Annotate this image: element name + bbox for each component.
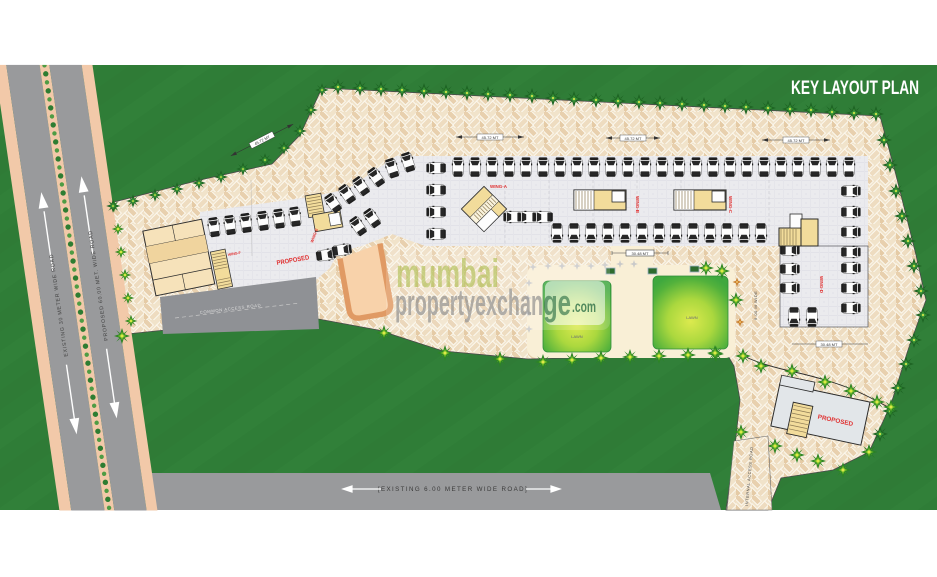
svg-text:WING-B: WING-B: [635, 196, 640, 214]
svg-text:WING-C: WING-C: [728, 196, 733, 214]
svg-text:45.72 MT: 45.72 MT: [788, 138, 805, 143]
svg-text:WING-D: WING-D: [819, 276, 824, 294]
svg-text:30.48 MT: 30.48 MT: [632, 251, 649, 256]
svg-text:9.00 M WIDE: 9.00 M WIDE: [753, 291, 758, 320]
svg-text:.com: .com: [572, 299, 596, 316]
svg-text:propertyexchange: propertyexchange: [395, 282, 571, 323]
svg-text:30.48 MT: 30.48 MT: [821, 342, 838, 347]
svg-text:45.72 MT: 45.72 MT: [482, 135, 499, 140]
svg-text:LAWN: LAWN: [686, 315, 698, 320]
svg-text:LAWN: LAWN: [571, 334, 583, 339]
svg-text:WING-A: WING-A: [490, 184, 508, 189]
svg-text:KEY LAYOUT PLAN: KEY LAYOUT PLAN: [791, 78, 919, 99]
svg-text:[EXISTING 6.00 METER WIDE ROAD: [EXISTING 6.00 METER WIDE ROAD]: [378, 486, 528, 493]
svg-text:45.72 MT: 45.72 MT: [625, 136, 642, 141]
